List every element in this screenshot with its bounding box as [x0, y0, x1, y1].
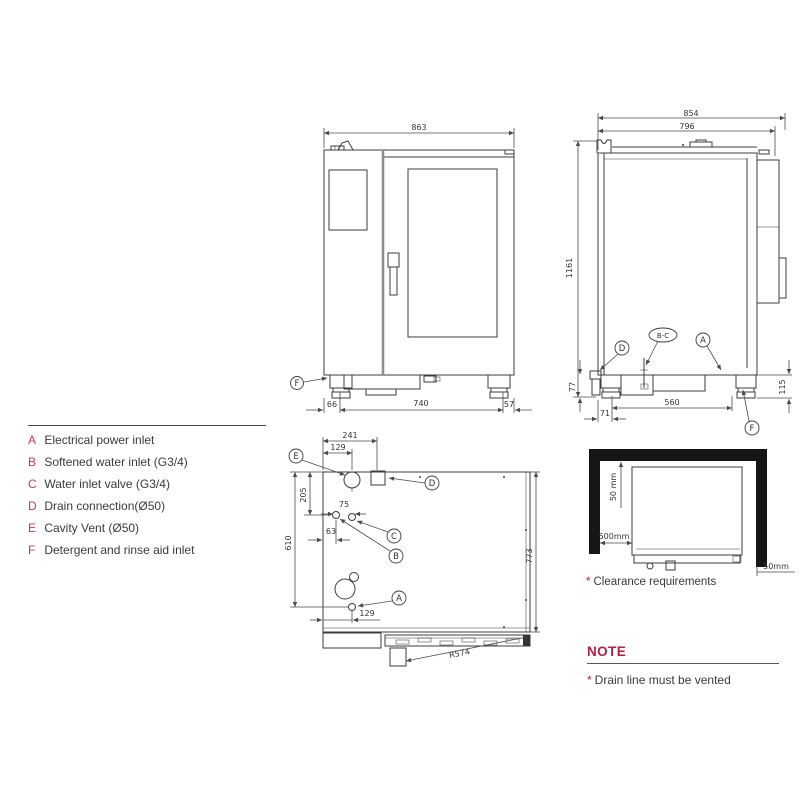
callout-a-top: A: [358, 591, 406, 606]
datasheet-page: 863 66 740 57 F: [0, 0, 800, 800]
dim-top-overall-depth: 773: [525, 548, 534, 563]
callout-f-side-letter: F: [750, 424, 755, 434]
legend-label: Softened water inlet (G3/4): [44, 455, 187, 469]
clearance-asterisk: *: [586, 576, 590, 588]
dim-side-leg-height: 77: [568, 382, 577, 392]
dim-top-power-offset: 129: [359, 609, 374, 618]
dim-front-base-width: 740: [413, 399, 428, 408]
callout-f-side: F: [743, 390, 759, 435]
callout-f-front-letter: F: [295, 379, 300, 389]
side-view: 854 796 1161 77 71 560 115 D B-C A: [565, 109, 792, 435]
callout-e-top-letter: E: [293, 452, 298, 462]
note-section: NOTE *Drain line must be vented: [587, 644, 779, 687]
legend-item: D Drain connection(Ø50): [28, 495, 278, 517]
dim-top-power-depth: 610: [284, 535, 293, 550]
callout-a-side-letter: A: [700, 336, 706, 346]
legend-divider: [28, 425, 266, 426]
dim-top-vent-offset: 129: [330, 443, 345, 452]
legend-label: Water inlet valve (G3/4): [44, 477, 170, 491]
clearance-caption-text: Clearance requirements: [593, 576, 716, 588]
callout-d-side-letter: D: [619, 344, 626, 354]
callout-a-top-letter: A: [396, 594, 402, 604]
legend-item: E Cavity Vent (Ø50): [28, 517, 278, 539]
dim-side-overall-height: 1161: [565, 258, 574, 278]
legend-item: B Softened water inlet (G3/4): [28, 451, 278, 473]
top-view: 241 129 205 75 63 610 129 773 R574 E D: [284, 431, 540, 666]
legend-label: Cavity Vent (Ø50): [44, 521, 139, 535]
side-foot-back: [601, 375, 621, 388]
door-handle: [388, 253, 399, 267]
dim-side-back-offset: 71: [600, 409, 610, 418]
legend-key: C: [28, 473, 41, 495]
dim-side-body-depth: 796: [679, 122, 694, 131]
dim-top-inlet-offset: 63: [326, 527, 336, 536]
clearance-oven: [632, 467, 742, 555]
note-title: NOTE: [587, 644, 779, 664]
side-foot-front: [736, 375, 756, 388]
legend-label: Electrical power inlet: [44, 433, 154, 447]
top-electrical-inlet: [349, 604, 356, 611]
note-asterisk: *: [587, 673, 592, 687]
connection-legend: A Electrical power inlet B Softened wate…: [28, 429, 278, 561]
clearance-left-gap: 500mm: [599, 532, 630, 541]
callout-a-side: A: [696, 333, 721, 370]
legend-key: F: [28, 539, 41, 561]
top-drain: [371, 471, 385, 485]
dim-top-door-swing-radius: R574: [448, 647, 470, 660]
top-body: [323, 472, 530, 632]
front-foot-right: [488, 375, 510, 388]
note-text: *Drain line must be vented: [587, 673, 779, 687]
callout-c-top: C: [357, 521, 401, 543]
side-cavity-vent: [597, 140, 611, 153]
dim-front-overall-width: 863: [411, 123, 426, 132]
top-water-inlet-valve: [349, 514, 356, 521]
legend-key: B: [28, 451, 41, 473]
legend-label: Detergent and rinse aid inlet: [44, 543, 194, 557]
front-foot-left: [330, 375, 352, 388]
legend-item: A Electrical power inlet: [28, 429, 278, 451]
dim-front-right-offset: 57: [504, 400, 514, 409]
callout-c-top-letter: C: [391, 532, 397, 542]
legend-label: Drain connection(Ø50): [44, 499, 165, 513]
dim-side-base-height: 115: [778, 379, 787, 394]
dim-side-overall-depth: 854: [683, 109, 698, 118]
legend-key: D: [28, 495, 41, 517]
dim-front-left-offset: 66: [327, 400, 337, 409]
clearance-caption: *Clearance requirements: [586, 576, 716, 588]
legend-key: A: [28, 429, 41, 451]
callout-d-top: D: [389, 476, 439, 490]
clearance-right-gap: 50mm: [763, 562, 789, 571]
side-door-panel: [757, 160, 779, 303]
door-window: [408, 169, 497, 337]
dim-top-drain-offset: 241: [342, 431, 357, 440]
callout-f-front: F: [291, 377, 328, 390]
callout-bc-side-letter: B-C: [657, 332, 669, 340]
dim-side-base-depth: 560: [664, 398, 679, 407]
legend-item: C Water inlet valve (G3/4): [28, 473, 278, 495]
front-view: 863 66 740 57 F: [291, 123, 533, 413]
clearance-wall-right: [756, 449, 767, 567]
callout-bc-side: B-C: [646, 328, 677, 365]
callout-b-top-letter: B: [393, 552, 399, 562]
legend-item: F Detergent and rinse aid inlet: [28, 539, 278, 561]
top-detergent-inlet: [335, 579, 355, 599]
clearance-wall-top: [589, 449, 767, 461]
front-body: [324, 150, 514, 375]
clearance-top-gap: 50 mm: [609, 473, 618, 502]
dim-top-inlet-spacing: 75: [339, 500, 349, 509]
side-door-handle: [779, 258, 786, 298]
callout-d-top-letter: D: [429, 479, 436, 489]
clearance-diagram: 50 mm 500mm 50mm: [589, 449, 795, 576]
legend-key: E: [28, 517, 41, 539]
top-cavity-vent: [344, 472, 360, 488]
dim-top-vent-depth: 205: [299, 487, 308, 502]
control-panel: [329, 170, 367, 230]
top-softened-water-inlet: [333, 512, 340, 519]
note-body: Drain line must be vented: [595, 673, 731, 687]
